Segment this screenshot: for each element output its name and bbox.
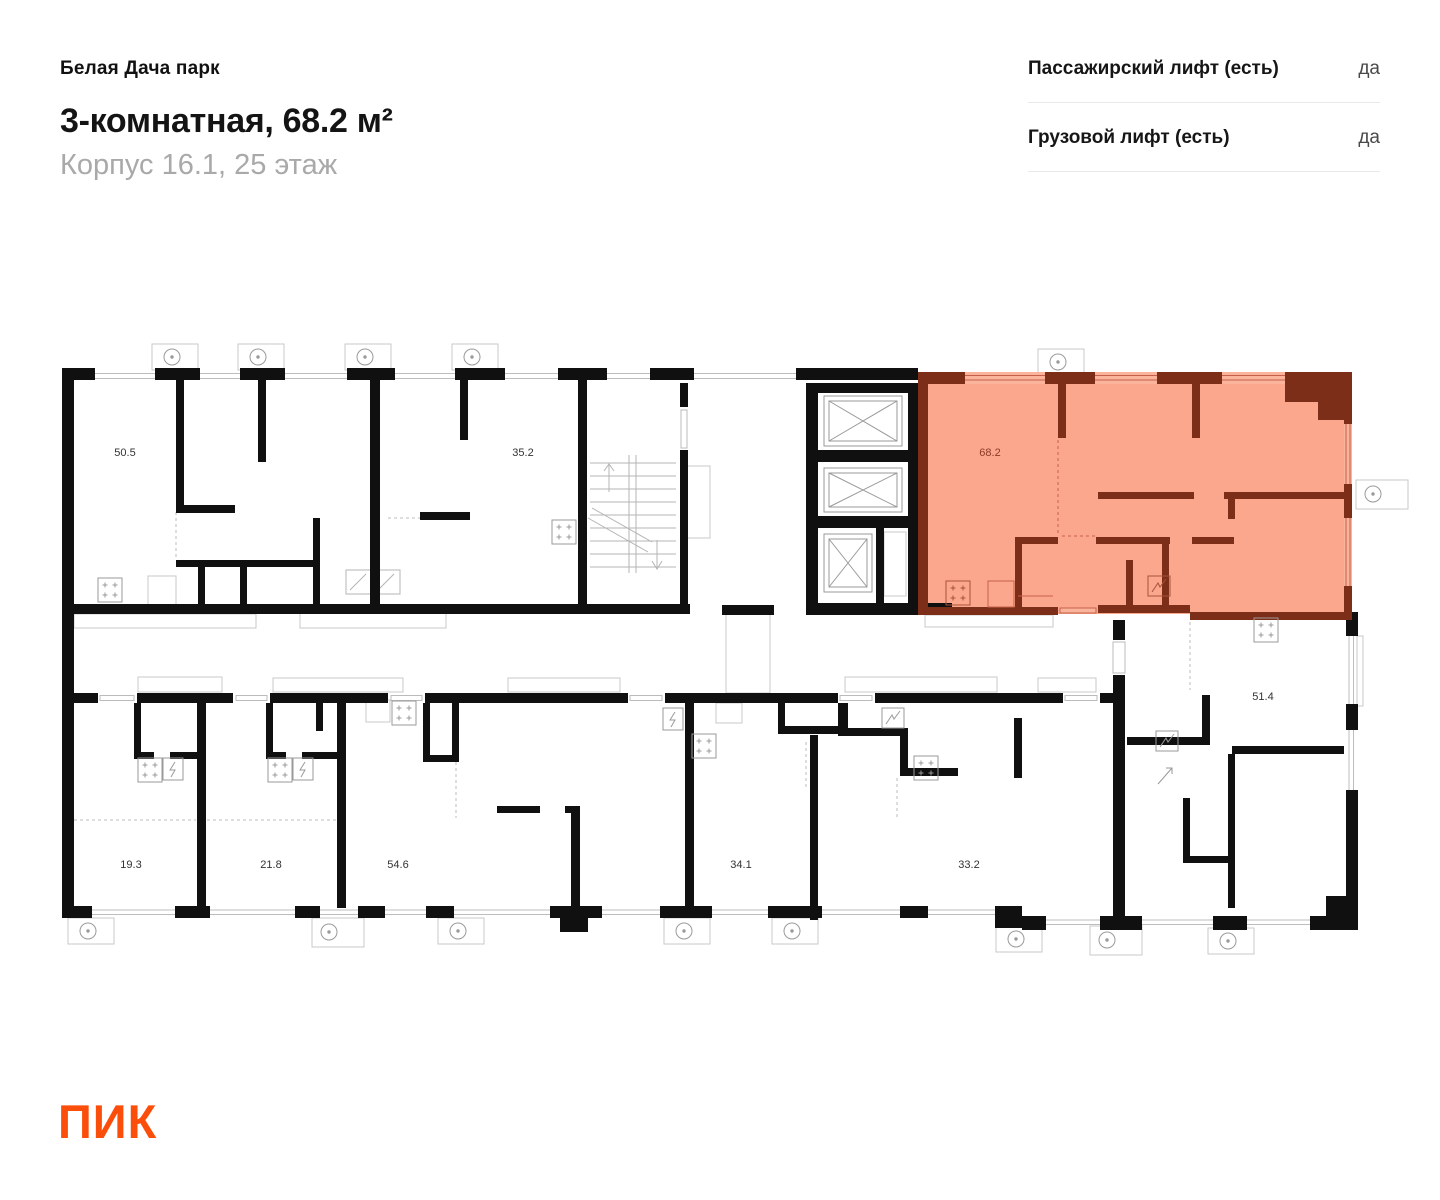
stove-icon bbox=[268, 758, 292, 782]
stove-icon bbox=[692, 734, 716, 758]
highlighted-unit-area-label: 68.2 bbox=[979, 447, 1000, 459]
stove-icon bbox=[98, 578, 122, 602]
electric-panel-icon bbox=[163, 758, 183, 780]
unit-area-label: 50.5 bbox=[114, 447, 135, 459]
stove-icon bbox=[914, 756, 938, 780]
unit-area-label: 54.6 bbox=[387, 859, 408, 871]
floor-plan: 50.5 35.2 68.2 19.3 21.8 54.6 34.1 33.2 … bbox=[0, 0, 1440, 1200]
washing-machine-icon bbox=[882, 708, 904, 728]
apartment-plan-page: Белая Дача парк 3-комнатная, 68.2 м² Кор… bbox=[0, 0, 1440, 1200]
balcony-outline bbox=[925, 615, 1053, 627]
elevator-shaft-icon bbox=[824, 396, 902, 592]
electric-panel-icon bbox=[663, 708, 683, 730]
unit-area-label: 51.4 bbox=[1252, 691, 1273, 703]
stove-icon bbox=[138, 758, 162, 782]
stove-icon bbox=[392, 701, 416, 725]
vent-arrow-icon bbox=[1158, 768, 1172, 784]
pik-logo: ПИК bbox=[58, 1094, 157, 1149]
stove-icon bbox=[1254, 618, 1278, 642]
unit-area-label: 19.3 bbox=[120, 859, 141, 871]
stove-icon bbox=[946, 581, 970, 605]
entry-threshold bbox=[1060, 608, 1096, 613]
unit-area-label: 35.2 bbox=[512, 447, 533, 459]
unit-area-label: 34.1 bbox=[730, 859, 751, 871]
stove-icon bbox=[552, 520, 576, 544]
unit-area-label: 21.8 bbox=[260, 859, 281, 871]
electric-panel-icon bbox=[293, 758, 313, 780]
unit-area-label: 33.2 bbox=[958, 859, 979, 871]
stairs-icon bbox=[588, 455, 676, 573]
